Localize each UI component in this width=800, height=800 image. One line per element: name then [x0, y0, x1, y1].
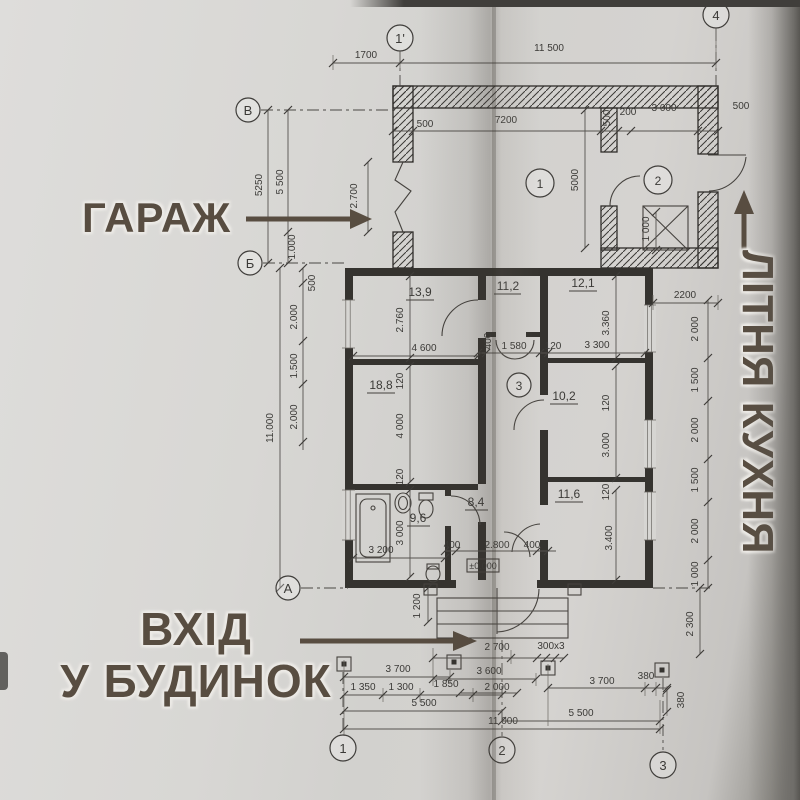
dim-1300: 1 300 [388, 682, 413, 693]
area-12-1: 12,1 [571, 276, 595, 290]
axis-a: А [284, 581, 293, 596]
dim-e2800: 2.800 [484, 540, 509, 551]
dim-e400a: 400 [444, 540, 461, 551]
dim-1700: 1700 [355, 50, 378, 61]
kitchen-door [708, 155, 746, 191]
summer-kitchen-label: ЛІТНЯ КУХНЯ [732, 250, 782, 555]
dim-g500b: 500 [733, 101, 750, 112]
dim-11500: 11 500 [534, 43, 564, 54]
dim-2300: 2 300 [685, 611, 696, 636]
dim-3360: 3.360 [601, 310, 612, 335]
area-8-4: 8,4 [468, 495, 485, 509]
dim-steps: 300x3 [537, 641, 565, 652]
dim-i400: 400 [483, 332, 494, 349]
dim-3600: 3 600 [476, 666, 501, 677]
dim-r1500b: 1 500 [690, 467, 701, 492]
dim-120a: 120 [395, 372, 406, 389]
dim-11000b: 11 000 [488, 716, 518, 727]
entrance-label-line2: У БУДИНОК [28, 656, 364, 708]
dim-lh1500: 1.500 [289, 353, 300, 378]
kitchen-arrowhead-icon [734, 190, 754, 214]
axis-b: Б [246, 256, 255, 271]
area-18-8: 18,8 [369, 378, 393, 392]
dim-3000b: 3.000 [601, 432, 612, 457]
dim-120d: 120 [601, 394, 612, 411]
dim-4000: 4 000 [395, 413, 406, 438]
axis-3: 3 [659, 758, 666, 773]
dim-1580: 1 580 [501, 341, 526, 352]
dim-3400: 3.400 [604, 525, 615, 550]
axis-1p: 1' [395, 31, 405, 46]
dim-b3700a: 3 700 [385, 664, 410, 675]
dim-380b: 380 [676, 691, 687, 708]
dim-3000a: 3 000 [395, 520, 406, 545]
area-13-9: 13,9 [408, 285, 432, 299]
dim-5250: 5250 [254, 173, 265, 196]
dim-3200: 3 200 [368, 545, 393, 556]
elevation-value: ±0.000 [469, 561, 496, 571]
dim-r2000c: 2 000 [690, 518, 701, 543]
dim-120e: 120 [601, 483, 612, 500]
area-10-2: 10,2 [552, 389, 576, 403]
area-11-6: 11,6 [558, 487, 581, 501]
dim-g200: 200 [620, 107, 637, 118]
dim-g500a: 500 [417, 119, 434, 130]
dim-2200: 2200 [674, 290, 697, 301]
dim-b3700b: 3 700 [589, 676, 614, 687]
dim-3300: 3 300 [584, 340, 609, 351]
dim-1000b: 1 000 [641, 216, 652, 241]
axis-v: В [244, 103, 253, 118]
dim-1000a: 1.000 [287, 234, 298, 259]
axis-4: 4 [712, 8, 719, 23]
dim-2760: 2.760 [395, 307, 406, 332]
dim-r2000a: 2 000 [690, 316, 701, 341]
dim-380a: 380 [638, 671, 655, 682]
entrance-label-line1: ВХІД [28, 604, 364, 656]
dim-5500l: 5 500 [275, 169, 286, 194]
dim-lh2000b: 2.000 [289, 404, 300, 429]
dim-4600: 4 600 [411, 343, 436, 354]
room-num-kitchen: 2 [655, 174, 662, 188]
dim-lh500: 500 [307, 274, 318, 291]
dim-2700b: 2 700 [484, 642, 509, 653]
dim-b2000: 2 000 [484, 682, 509, 693]
dim-2700gate: 2.700 [349, 183, 360, 208]
wc-toilet-icon [426, 564, 440, 582]
dim-1200: 1 200 [412, 593, 423, 618]
area-11-2: 11,2 [497, 279, 520, 293]
elevation-mark: ±0.000 [467, 559, 499, 572]
dim-g500v: 500 [602, 109, 613, 126]
garage-gate [395, 162, 411, 232]
dim-5000: 5000 [570, 168, 581, 191]
room-num-hall: 3 [516, 379, 523, 393]
axis-1: 1 [339, 741, 346, 756]
area-9-6: 9,6 [410, 511, 427, 525]
dim-lh2000a: 2.000 [289, 304, 300, 329]
entrance-arrowhead-icon [453, 631, 477, 651]
dim-r1500a: 1 500 [690, 367, 701, 392]
dim-120b: 120 [395, 468, 406, 485]
dim-e400b: 400 [524, 540, 541, 551]
scanned-floorplan-photo: 1' 4 В Б А 1 2 3 1 2 3 13,9 11,2 12,1 18… [0, 0, 800, 800]
garage-arrowhead-icon [350, 209, 372, 229]
garage-divider-door [610, 176, 640, 206]
dim-120c: 120 [545, 341, 562, 352]
dim-7200: 7200 [495, 115, 518, 126]
dim-r2000b: 2 000 [690, 417, 701, 442]
dim-g3000: 3 000 [651, 103, 676, 114]
porch-steps [424, 584, 581, 638]
dim-1850: 1 850 [433, 679, 458, 690]
garage-label: ГАРАЖ [82, 194, 231, 242]
dim-b5500b: 5 500 [568, 708, 593, 719]
room-num-garage: 1 [537, 177, 544, 191]
dim-11000l: 11.000 [265, 413, 276, 443]
entrance-label: ВХІД У БУДИНОК [28, 604, 364, 708]
dim-b5500a: 5 500 [411, 698, 436, 709]
sink-icon [395, 493, 411, 513]
dim-r1000: 1 000 [690, 561, 701, 586]
axis-2: 2 [498, 743, 505, 758]
